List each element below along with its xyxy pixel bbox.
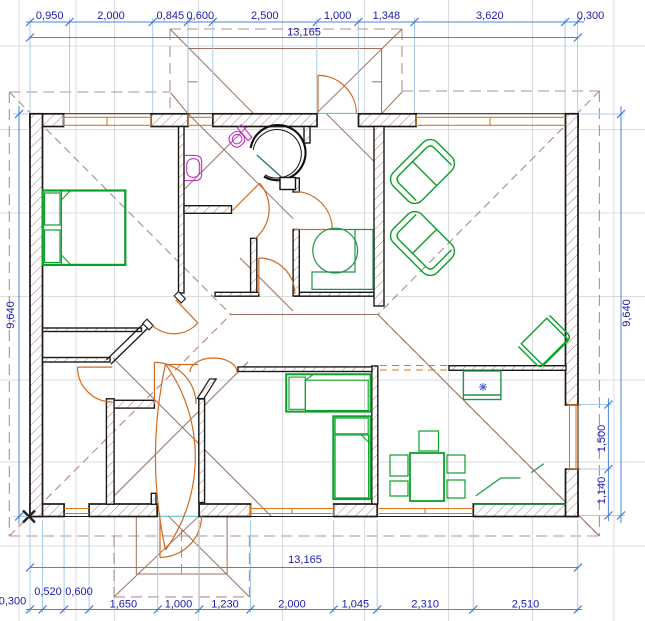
svg-text:0,950: 0,950 [36,10,64,22]
svg-text:1,230: 1,230 [211,599,239,611]
svg-text:9,640: 9,640 [621,299,633,327]
svg-text:1,140: 1,140 [596,477,608,505]
svg-text:2,310: 2,310 [411,599,439,611]
svg-text:2,500: 2,500 [251,10,279,22]
svg-text:0,300: 0,300 [0,596,26,608]
svg-text:2,000: 2,000 [97,10,125,22]
svg-text:1,000: 1,000 [324,10,352,22]
svg-text:1,045: 1,045 [342,599,370,611]
svg-text:1,000: 1,000 [165,599,193,611]
svg-text:0,600: 0,600 [187,10,215,22]
svg-text:2,000: 2,000 [278,599,306,611]
svg-text:0,520: 0,520 [34,586,62,598]
svg-text:13,165: 13,165 [287,27,321,39]
svg-text:1,500: 1,500 [596,425,608,453]
svg-text:1,650: 1,650 [110,599,138,611]
svg-text:0,845: 0,845 [157,10,185,22]
svg-text:0,600: 0,600 [65,586,93,598]
svg-text:9,640: 9,640 [5,301,17,329]
svg-text:13,165: 13,165 [288,554,322,566]
svg-text:1,348: 1,348 [373,10,401,22]
svg-text:3,620: 3,620 [476,10,504,22]
svg-text:0,300: 0,300 [577,10,605,22]
svg-text:2,510: 2,510 [512,599,540,611]
